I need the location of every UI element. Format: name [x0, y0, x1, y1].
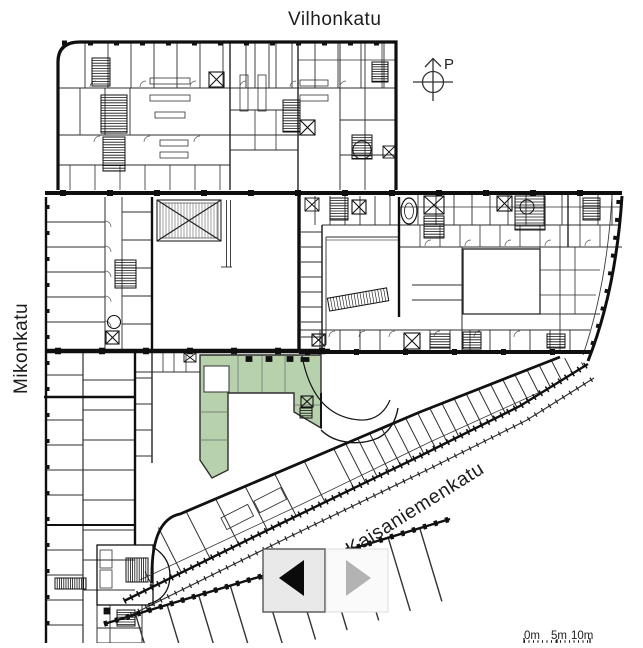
- svg-text:P: P: [444, 56, 454, 73]
- svg-text:Vilhonkatu: Vilhonkatu: [288, 9, 381, 30]
- svg-text:Mikonkatu: Mikonkatu: [11, 303, 32, 394]
- svg-text:0m: 0m: [524, 630, 540, 642]
- svg-text:5m: 5m: [551, 630, 567, 642]
